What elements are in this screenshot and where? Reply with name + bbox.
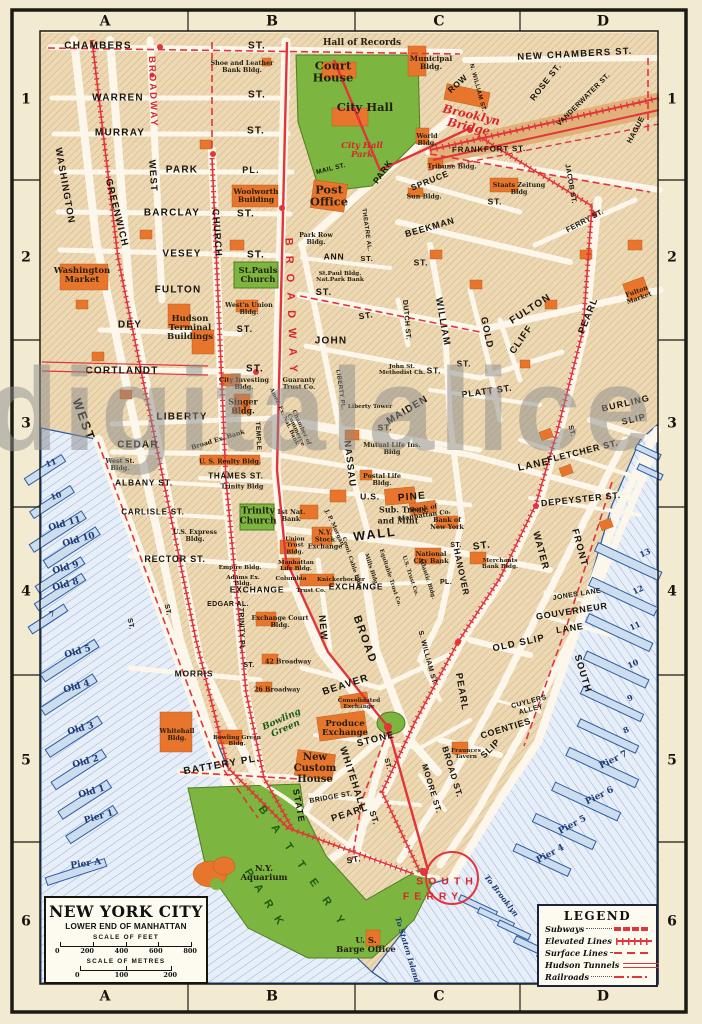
- aquarium-lawn: [210, 878, 222, 890]
- legend-item: Elevated Lines: [545, 935, 650, 947]
- legend-line-sample-subway: [614, 927, 650, 931]
- legend-item: Railroads: [545, 971, 650, 983]
- legend-item-label: Subways: [545, 924, 584, 934]
- legend-leader: [586, 928, 612, 929]
- legend-item-label: Elevated Lines: [545, 936, 612, 946]
- legend-item-label: Surface Lines: [545, 948, 608, 958]
- map-title-box: NEW YORK CITY LOWER END OF MANHATTAN SCA…: [44, 896, 208, 984]
- legend-item: Surface Lines: [545, 947, 650, 959]
- scale-tick: 200: [163, 971, 177, 979]
- legend-line-sample-tunnel: [623, 963, 659, 968]
- legend-item: Subways: [545, 923, 650, 935]
- legend-line-sample-railroad: [614, 976, 650, 978]
- scale-metres-label: SCALE OF METRES: [87, 958, 166, 965]
- scale-metres-ticks: 0100200: [75, 971, 177, 979]
- legend-title: LEGEND: [545, 909, 650, 923]
- scale-feet-label: SCALE OF FEET: [93, 934, 159, 941]
- legend-leader: [610, 952, 612, 953]
- legend-item: Hudson Tunnels: [545, 959, 650, 971]
- legend-item-label: Hudson Tunnels: [545, 960, 619, 970]
- legend: LEGEND SubwaysElevated LinesSurface Line…: [537, 904, 658, 987]
- scale-tick: 400: [115, 947, 129, 955]
- scale-tick: 0: [75, 971, 80, 979]
- scale-tick: 200: [80, 947, 94, 955]
- legend-item-label: Railroads: [545, 972, 589, 982]
- scale-tick: 800: [183, 947, 197, 955]
- map-subtitle: LOWER END OF MANHATTAN: [65, 922, 186, 931]
- scale-tick: 600: [149, 947, 163, 955]
- vintage-map-page: CHAMBERSST.Hall of RecordsNEW CHAMBERS S…: [0, 0, 702, 1024]
- legend-line-sample-elevated: [616, 938, 652, 945]
- legend-line-sample-surface: [614, 952, 650, 954]
- scale-feet-ticks: 0200400600800: [55, 947, 197, 955]
- map-title: NEW YORK CITY: [49, 902, 203, 921]
- map-canvas: [0, 0, 702, 1024]
- scale-tick: 0: [55, 947, 60, 955]
- scale-tick: 100: [115, 971, 129, 979]
- legend-leader: [591, 976, 612, 977]
